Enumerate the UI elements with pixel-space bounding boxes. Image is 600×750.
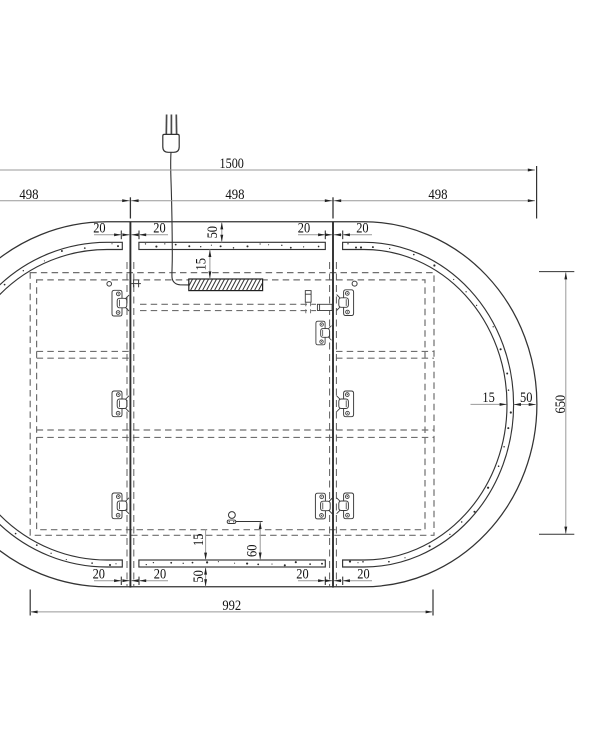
svg-text:1500: 1500	[220, 156, 244, 172]
svg-text:992: 992	[222, 598, 241, 614]
svg-text:20: 20	[298, 220, 310, 236]
svg-text:15: 15	[482, 390, 494, 406]
svg-text:498: 498	[19, 187, 38, 203]
svg-text:20: 20	[357, 566, 369, 582]
svg-text:20: 20	[356, 220, 368, 236]
svg-text:20: 20	[153, 220, 165, 236]
svg-text:20: 20	[154, 566, 166, 582]
svg-text:498: 498	[428, 187, 447, 203]
svg-text:15: 15	[193, 258, 209, 270]
svg-text:20: 20	[93, 566, 105, 582]
svg-text:20: 20	[93, 220, 105, 236]
svg-text:15: 15	[191, 534, 207, 546]
svg-text:60: 60	[244, 545, 260, 557]
svg-text:50: 50	[191, 570, 207, 582]
svg-text:20: 20	[296, 566, 308, 582]
svg-text:50: 50	[205, 226, 221, 238]
svg-text:498: 498	[225, 187, 244, 203]
svg-text:50: 50	[520, 390, 532, 406]
svg-text:650: 650	[553, 395, 569, 414]
